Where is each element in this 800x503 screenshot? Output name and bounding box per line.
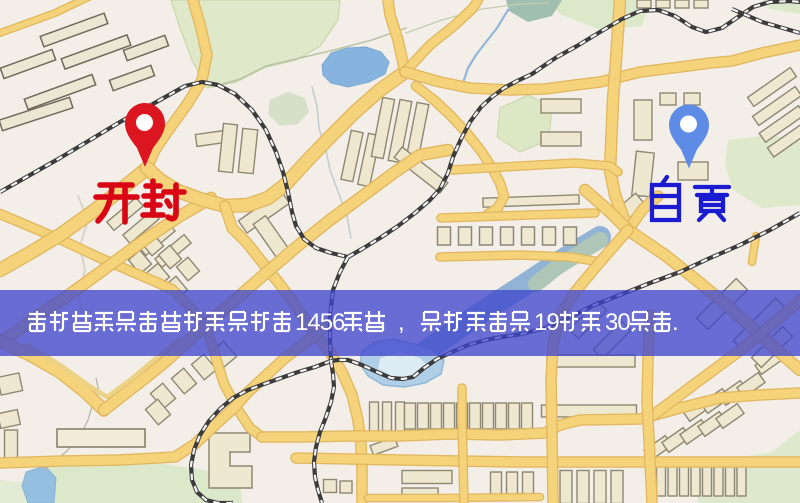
svg-text:1456: 1456 — [295, 309, 345, 336]
svg-text:19: 19 — [534, 309, 559, 336]
svg-text:.: . — [672, 309, 679, 336]
svg-text:30: 30 — [605, 309, 630, 336]
svg-text:,: , — [398, 309, 405, 336]
